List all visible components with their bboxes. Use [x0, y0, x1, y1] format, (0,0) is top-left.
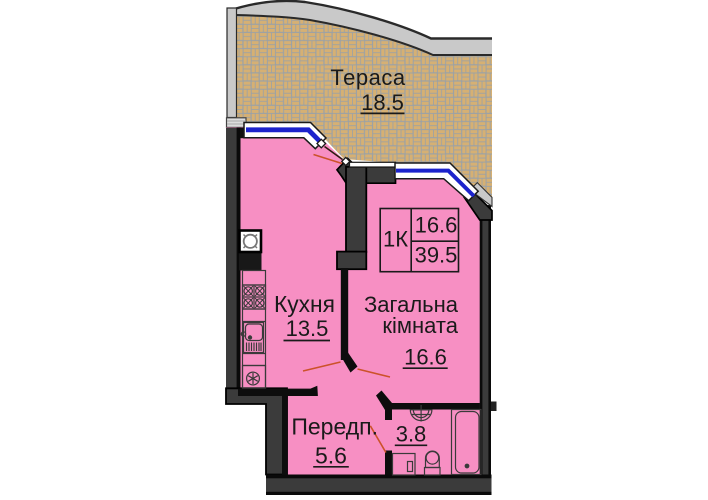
- svg-text:18.5: 18.5: [361, 90, 404, 115]
- svg-text:Передп.: Передп.: [291, 414, 378, 440]
- svg-text:Тераса: Тераса: [330, 65, 405, 90]
- svg-text:кімната: кімната: [382, 313, 458, 338]
- svg-text:16.6: 16.6: [415, 213, 458, 238]
- svg-text:13.5: 13.5: [286, 316, 329, 341]
- svg-text:39.5: 39.5: [415, 243, 458, 268]
- svg-text:Кухня: Кухня: [274, 291, 335, 317]
- svg-text:1К: 1К: [383, 227, 408, 252]
- svg-text:3.8: 3.8: [396, 421, 427, 446]
- svg-text:5.6: 5.6: [315, 442, 347, 468]
- svg-text:16.6: 16.6: [404, 344, 447, 369]
